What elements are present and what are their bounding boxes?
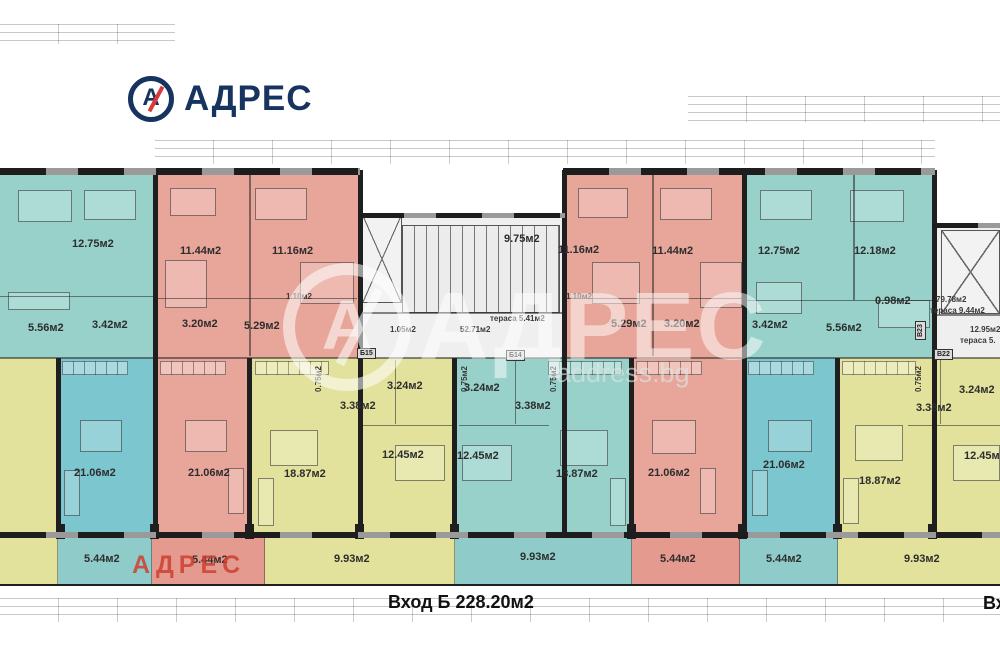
room-area-label: 0.98м2 (875, 295, 911, 307)
room-area-label: 21.06м2 (648, 467, 690, 479)
room-area-label: 12.45м2 (964, 450, 1000, 462)
partition-wall (0, 357, 1000, 359)
room-area-label: 11.44м2 (652, 245, 693, 257)
room-area-label: 12.18м2 (854, 245, 896, 257)
furniture (850, 190, 904, 222)
partition-wall (652, 172, 654, 356)
room-area-label: 18.87м2 (556, 468, 598, 480)
furniture (18, 190, 72, 222)
furniture (255, 188, 307, 220)
room-area-label: 9.75м2 (504, 233, 540, 245)
partition-wall (395, 360, 396, 424)
terrace-area-label: 9.93м2 (520, 551, 556, 563)
furniture (165, 260, 207, 308)
partition-wall (0, 296, 153, 297)
room-area-label: 3.24м2 (959, 384, 995, 396)
room-area-label: 5.56м2 (28, 322, 64, 334)
address-bg-watermark: address.bg (556, 358, 690, 389)
room-area-label: 3.24м2 (387, 380, 423, 392)
core-note: тераса 5. (960, 336, 996, 345)
room-area-label: 0.75м2 (314, 366, 323, 392)
room-area-label: 21.06м2 (188, 467, 230, 479)
furniture (652, 420, 696, 454)
entrance-total-area-label: Вход Б 228.20м2 (388, 592, 534, 613)
furniture (660, 188, 712, 220)
terrace-area-label: 5.44м2 (660, 553, 696, 565)
terrace-yellow-clipped (0, 538, 58, 585)
room-area-label: 12.75м2 (758, 245, 800, 257)
furniture (228, 468, 244, 514)
window-wall (563, 168, 935, 175)
room-area-label: 12.45м2 (457, 450, 499, 462)
wall (452, 358, 457, 538)
room-area-label: 3.38м2 (515, 400, 551, 412)
kitchen-counter (62, 361, 128, 375)
room-area-label: 0.75м2 (914, 366, 923, 392)
partition-wall (853, 172, 855, 300)
furniture (843, 478, 859, 524)
terrace-area-label: 5.44м2 (766, 553, 802, 565)
furniture (610, 478, 626, 526)
core-note: 1.05м2 (390, 325, 416, 334)
terrace-area-label: 5.44м2 (84, 553, 120, 565)
partition-wall (157, 298, 357, 299)
dimension-lines-above-plan (155, 140, 935, 164)
adres-logo: А АДРЕС (128, 76, 312, 122)
core-note: тераса 9.44м2 (930, 306, 985, 315)
wall (0, 584, 1000, 586)
room-area-label: 1.10м2 (566, 292, 592, 301)
partition-wall (515, 360, 516, 424)
partition-wall (567, 298, 742, 299)
room-area-label: 3.20м2 (182, 318, 218, 330)
kitchen-counter (748, 361, 814, 375)
window-wall (358, 213, 565, 218)
room-area-label: 3.24м2 (464, 382, 500, 394)
room-area-label: 21.06м2 (74, 467, 116, 479)
room-area-label: 3.42м2 (92, 319, 128, 331)
core-note: 79.78м2 (936, 295, 966, 304)
wall (835, 358, 840, 538)
core-note: 12.95м2 (970, 325, 1000, 334)
furniture (258, 478, 274, 526)
room-area-label: 1.10м2 (286, 292, 312, 301)
room-area-label: 12.75м2 (72, 238, 114, 250)
furniture (80, 420, 122, 452)
furniture (752, 470, 768, 516)
furniture (855, 425, 903, 461)
core-note: 52.71м2 (460, 325, 490, 334)
door-tag-v22: В22 (934, 349, 953, 360)
furniture (170, 188, 216, 216)
door-tag-v23: В23 (915, 321, 926, 340)
room-area-label: 3.42м2 (752, 319, 788, 331)
room-area-label: 11.16м2 (272, 245, 313, 257)
kitchen-counter (160, 361, 226, 375)
furniture (270, 430, 318, 466)
room-area-label: 3.38м2 (340, 400, 376, 412)
wall (247, 358, 252, 538)
room-area-label: 5.56м2 (826, 322, 862, 334)
partition-wall (362, 425, 452, 426)
floor-plan-image: 12.18м2 12.75м2 5.56м2 3.42м2 0.98м2 11.… (0, 0, 1000, 666)
furniture (185, 420, 227, 452)
wall (56, 358, 61, 538)
wall (742, 170, 747, 538)
elevator-shaft-left (362, 215, 402, 303)
room-area-label: 12.45м2 (382, 449, 424, 461)
window-wall (932, 223, 1000, 228)
wall (562, 170, 567, 538)
partition-wall (908, 425, 1000, 426)
furniture (700, 468, 716, 514)
wall (153, 170, 158, 538)
furniture (560, 430, 608, 466)
room-area-label: 21.06м2 (763, 459, 805, 471)
adres-logo-icon: А (128, 76, 174, 122)
room-area-label: 11.44м2 (180, 245, 221, 257)
dimension-lines-top-left (0, 24, 175, 44)
room-area-label: 0.75м2 (460, 366, 469, 392)
terrace-area-label: 9.93м2 (334, 553, 370, 565)
core-note: тераса 5.41м2 (490, 314, 545, 323)
furniture (8, 292, 70, 310)
room-area-label: 18.87м2 (859, 475, 901, 487)
door-tag-b14: Б14 (506, 350, 525, 361)
furniture (760, 190, 812, 220)
furniture (700, 262, 742, 308)
room-area-label: 3.20м2 (664, 318, 700, 330)
window-wall (0, 532, 1000, 538)
window-wall (0, 168, 360, 175)
room-area-label: 3.38м2 (916, 402, 952, 414)
entrance-right-clipped-label: Вх (983, 593, 1000, 614)
dimension-lines-top-right (688, 96, 1000, 122)
terrace-area-label: 9.93м2 (904, 553, 940, 565)
adres-red-watermark: АДРЕС (132, 551, 245, 580)
living-zone-yellow-strip (0, 358, 58, 538)
furniture (578, 188, 628, 218)
furniture (84, 190, 136, 220)
adres-logo-text: АДРЕС (184, 79, 312, 119)
kitchen-counter (842, 361, 916, 375)
furniture (756, 282, 802, 314)
furniture (768, 420, 812, 452)
room-area-label: 5.29м2 (244, 320, 280, 332)
partition-wall (459, 425, 549, 426)
room-area-label: 11.16м2 (558, 244, 599, 256)
room-area-label: 5.29м2 (611, 318, 647, 330)
partition-wall (940, 360, 941, 424)
room-area-label: 18.87м2 (284, 468, 326, 480)
door-tag-b15: Б15 (357, 348, 376, 359)
